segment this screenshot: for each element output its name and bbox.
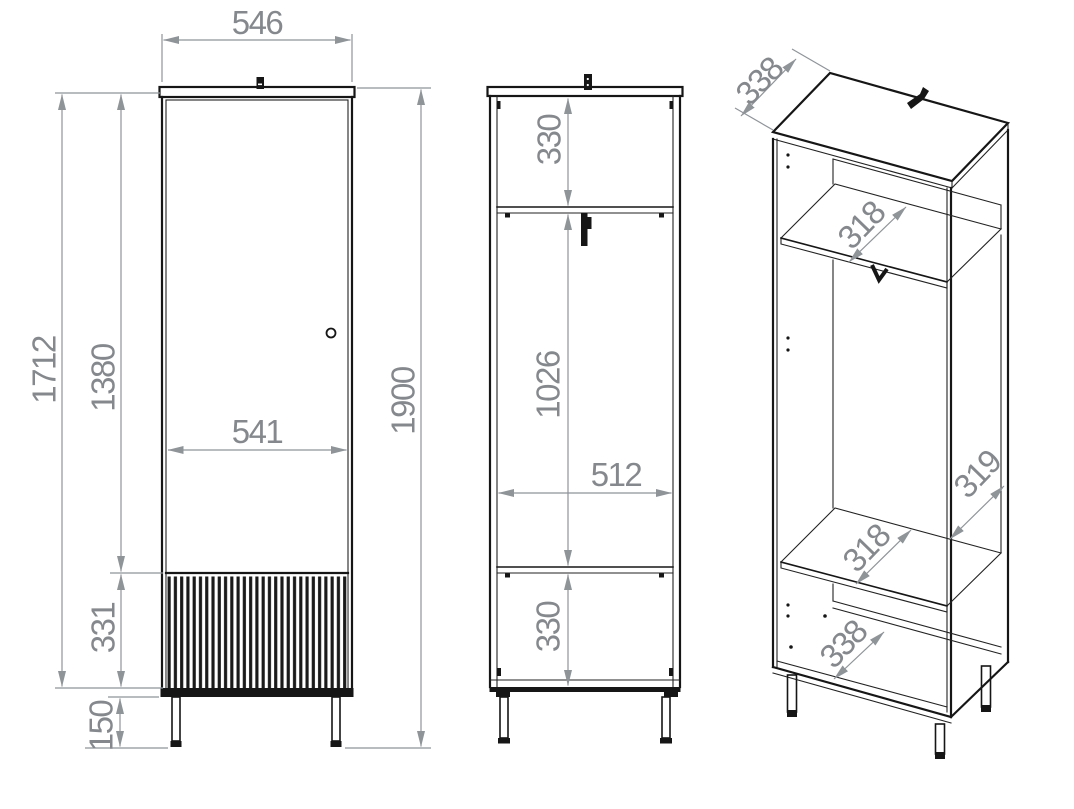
front-view (160, 77, 355, 747)
wall-mount-bracket-icon (257, 77, 265, 89)
iso-wall-bracket-icon (907, 87, 929, 109)
dim-body-height: 1712 (26, 336, 63, 404)
section-right-leg (662, 697, 670, 738)
dim-total-height: 1900 (385, 366, 422, 435)
iso-hanging-hook-icon (872, 265, 887, 280)
left-leg-foot (171, 741, 182, 747)
iso-front-left-leg (788, 675, 797, 712)
wardrobe-dimension-drawing: 546 541 1900 1712 1380 331 150 (0, 0, 1074, 809)
dim-side-depth: 319 (946, 443, 1008, 505)
iso-upper-shelf (781, 184, 1001, 288)
front-right-leg (332, 697, 340, 741)
dim-upper-section-height: 1380 (85, 343, 122, 412)
dim-top-compartment: 330 (531, 114, 568, 166)
dim-interior-width: 512 (591, 456, 642, 493)
dim-door-width: 541 (232, 413, 283, 450)
perspective-view (773, 73, 1008, 759)
front-left-leg (172, 697, 180, 741)
hanging-hook-icon (581, 213, 592, 246)
dim-bottom-compartment: 330 (530, 601, 567, 653)
section-base-strip (490, 687, 681, 692)
section-left-leg (500, 697, 508, 738)
technical-drawing-canvas: 546 541 1900 1712 1380 331 150 (0, 0, 1074, 809)
dim-front-width: 546 (232, 4, 283, 41)
dim-bottom-depth: 338 (812, 613, 874, 675)
section-wall-bracket-icon (584, 74, 592, 90)
base-strip (161, 688, 354, 697)
dim-top-depth: 338 (728, 50, 790, 112)
iso-interior-ceiling-edge (833, 159, 1001, 205)
iso-bottom-front-edge (773, 667, 951, 717)
iso-front-right-leg (936, 724, 945, 754)
fluted-door-panel (167, 577, 348, 689)
right-leg-foot (331, 741, 342, 747)
section-view-dimensions: 330 1026 330 512 (499, 99, 672, 686)
iso-top-face (773, 73, 1008, 181)
dim-upper-shelf-depth: 318 (830, 194, 892, 256)
dim-middle-compartment: 1026 (530, 351, 567, 419)
dim-lower-shelf-depth: 318 (835, 517, 897, 579)
dim-fluted-section-height: 331 (85, 603, 122, 654)
iso-lower-shelf (781, 508, 1001, 612)
dim-leg-height: 150 (83, 700, 120, 752)
section-view (488, 74, 683, 744)
door-handle-hole (327, 329, 336, 338)
